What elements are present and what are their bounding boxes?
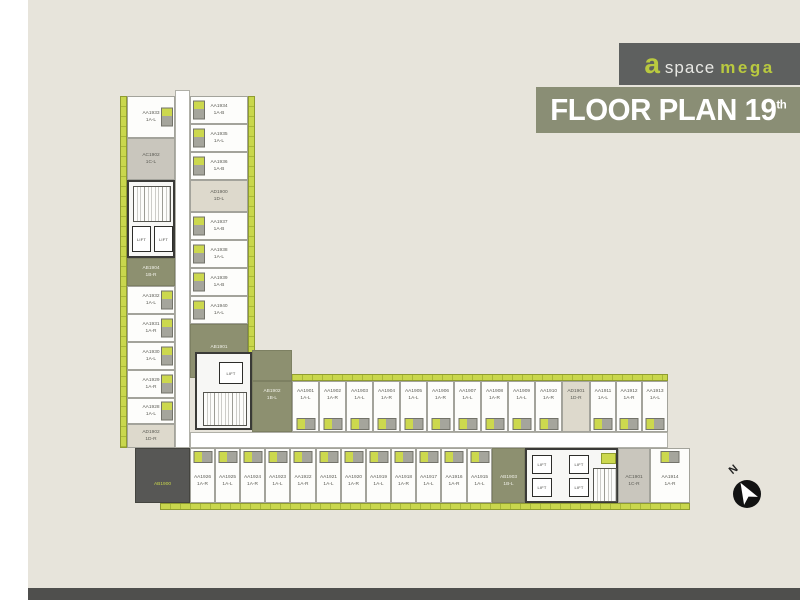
unit-AA1920: AA19201A-R <box>341 448 366 503</box>
unit-type: 1A-R <box>146 329 157 335</box>
lift-box: LIFT <box>219 362 243 384</box>
unit-type: 1A-L <box>354 396 364 402</box>
unit-AA1924: AA19241A-R <box>240 448 265 503</box>
unit-type: 1A-B <box>214 167 225 173</box>
unit-AA1922: AA19221A-R <box>290 448 316 503</box>
left-wing-core: LIFT LIFT <box>127 180 175 258</box>
unit-number: AA1929 <box>142 378 159 384</box>
unit-AA1906: AA19061A-R <box>427 381 454 432</box>
unit-AA1911: AA19111A-L <box>590 381 616 432</box>
unit-AB1900: AB1900 <box>135 448 190 503</box>
bathroom-pod <box>193 273 205 292</box>
bathroom-pod <box>161 291 173 310</box>
unit-AA1937: AA19371A-B <box>190 212 248 240</box>
unit-type: 1A-L <box>408 396 418 402</box>
unit-type: 1C-L <box>146 160 156 166</box>
unit-AA1909: AA19091A-L <box>508 381 535 432</box>
bathroom-pod <box>319 451 338 463</box>
unit-number: AA1940 <box>210 304 227 310</box>
unit-number: AA1911 <box>595 389 612 395</box>
unit-AA1912: AA19121A-R <box>616 381 642 432</box>
unit-AA1925: AA19251A-L <box>215 448 240 503</box>
unit-number: AA1937 <box>210 220 227 226</box>
unit-type: 1D-R <box>570 396 581 402</box>
unit-AA1913: AA19131A-L <box>642 381 668 432</box>
unit-number: AA1930 <box>142 350 159 356</box>
unit-type: 1A-R <box>435 396 446 402</box>
bathroom-pod <box>193 157 205 176</box>
unit-number: AD1901 <box>567 389 584 395</box>
unit-number: AA1912 <box>620 389 637 395</box>
unit-AA1940: AA19401A-L <box>190 296 248 324</box>
bathroom-pod <box>539 418 558 430</box>
unit-AA1932: AA19321A-L <box>127 286 175 314</box>
unit-number: AA1922 <box>294 475 311 481</box>
bathroom-pod <box>161 375 173 394</box>
unit-type: 1A-R <box>665 482 676 488</box>
unit-number: AA1934 <box>210 104 227 110</box>
unit-type: 1A-R <box>327 396 338 402</box>
unit-AA1923: AA19231A-L <box>265 448 290 503</box>
unit-number: AA1931 <box>142 322 159 328</box>
bathroom-pod <box>369 451 388 463</box>
unit-AA1929: AA19291A-R <box>127 370 175 398</box>
unit-AB1902: AB19021B-L <box>252 381 292 432</box>
bathroom-pod <box>193 451 212 463</box>
unit-AA1930: AA19301A-L <box>127 342 175 370</box>
bathroom-pod <box>193 245 205 264</box>
unit-AA1928: AA19281A-L <box>127 398 175 424</box>
unit-number: AA1914 <box>661 475 678 481</box>
lift-label: LIFT <box>574 462 583 467</box>
lift-label: LIFT <box>226 371 235 376</box>
lift-box: LIFT <box>569 455 589 474</box>
lift-label: LIFT <box>137 237 146 242</box>
unit-number: AA1928 <box>142 405 159 411</box>
compass-north-label: N <box>727 463 741 477</box>
lift-label: LIFT <box>537 462 546 467</box>
bathroom-pod <box>620 418 639 430</box>
unit-number: AA1932 <box>142 294 159 300</box>
bathroom-pod <box>296 418 315 430</box>
unit-type: 1A-L <box>474 482 484 488</box>
lift-box: LIFT <box>532 478 552 497</box>
corridor-vertical <box>175 90 190 448</box>
corner-unit-extension <box>252 350 292 381</box>
compass: N <box>716 450 780 514</box>
unit-number: AA1918 <box>395 475 412 481</box>
unit-type: 1A-L <box>146 301 156 307</box>
bathroom-pod <box>218 451 237 463</box>
unit-type: 1A-L <box>423 482 433 488</box>
corner-core: LIFT <box>195 352 252 430</box>
unit-AA1939: AA19391A-B <box>190 268 248 296</box>
bathroom-pod <box>193 217 205 236</box>
balcony-strip-inner <box>248 96 255 370</box>
bathroom-pod <box>394 451 413 463</box>
unit-number: AA1933 <box>142 111 159 117</box>
lift-box: LIFT <box>154 226 173 252</box>
unit-AA1934: AA19341A-B <box>190 96 248 124</box>
unit-AA1915: AA19151A-L <box>467 448 492 503</box>
unit-AD1901: AD19011D-R <box>562 381 590 432</box>
unit-AA1908: AA19081A-R <box>481 381 508 432</box>
unit-number: AB1900 <box>154 482 171 488</box>
unit-type: 1A-R <box>489 396 500 402</box>
unit-number: AB1901 <box>210 345 227 351</box>
unit-number: AA1915 <box>471 475 488 481</box>
unit-number: AA1913 <box>646 389 663 395</box>
bathroom-pod <box>193 129 205 148</box>
unit-type: 1A-L <box>373 482 383 488</box>
bathroom-pod <box>323 418 342 430</box>
unit-AA1918: AA19181A-R <box>391 448 416 503</box>
balcony-strip-left <box>120 96 127 448</box>
bathroom-pod <box>419 451 438 463</box>
unit-type: 1A-L <box>650 396 660 402</box>
unit-type: 1A-L <box>598 396 608 402</box>
lift-label: LIFT <box>574 485 583 490</box>
unit-AA1907: AA19071A-L <box>454 381 481 432</box>
unit-number: AA1908 <box>486 389 503 395</box>
bathroom-pod <box>594 418 613 430</box>
unit-type: 1A-L <box>146 412 156 418</box>
balcony-strip-bottom <box>160 503 690 510</box>
unit-type: 1D-R <box>145 437 156 443</box>
unit-AB1904: AB19041B-R <box>127 258 175 286</box>
bathroom-pod <box>377 418 396 430</box>
unit-type: 1A-R <box>146 385 157 391</box>
page: a space mega FLOOR PLAN 19th AA19331A-LA… <box>0 0 800 600</box>
unit-number: AB1903 <box>500 475 517 481</box>
unit-AA1901: AA19011A-L <box>292 381 319 432</box>
unit-number: AD1902 <box>142 430 159 436</box>
unit-AA1935: AA19351A-L <box>190 124 248 152</box>
unit-number: AA1935 <box>210 132 227 138</box>
unit-type: 1A-L <box>300 396 310 402</box>
unit-number: AA1939 <box>210 276 227 282</box>
unit-AA1916: AA19161A-R <box>441 448 467 503</box>
lift-box: LIFT <box>132 226 151 252</box>
unit-number: AA1919 <box>370 475 387 481</box>
stairwell-icon <box>203 392 247 426</box>
unit-AA1905: AA19051A-L <box>400 381 427 432</box>
unit-AA1931: AA19311A-R <box>127 314 175 342</box>
balcony-strip-top <box>252 374 668 381</box>
unit-AA1917: AA19171A-L <box>416 448 441 503</box>
unit-type: 1A-R <box>247 482 258 488</box>
unit-type: 1A-R <box>298 482 309 488</box>
lift-box: LIFT <box>532 455 552 474</box>
unit-number: AA1903 <box>351 389 368 395</box>
unit-AD1900: AD19001D-L <box>190 180 248 212</box>
unit-AA1938: AA19381A-L <box>190 240 248 268</box>
lift-label: LIFT <box>537 485 546 490</box>
unit-type: 1A-L <box>214 139 224 145</box>
unit-type: 1A-B <box>214 283 225 289</box>
unit-number: AA1920 <box>345 475 362 481</box>
bathroom-pod <box>193 101 205 120</box>
unit-AA1910: AA19101A-R <box>535 381 562 432</box>
bathroom-pod <box>161 402 173 421</box>
unit-AB1903: AB19031B-L <box>492 448 525 503</box>
unit-number: AA1926 <box>194 475 211 481</box>
unit-AA1902: AA19021A-R <box>319 381 346 432</box>
unit-number: AA1909 <box>513 389 530 395</box>
unit-AA1926: AA19261A-R <box>190 448 215 503</box>
unit-type: 1B-R <box>146 273 157 279</box>
floor-plan: AA19331A-LAC19021C-LAB19041B-RAA19321A-L… <box>0 0 800 600</box>
bathroom-pod <box>161 108 173 127</box>
bathroom-pod <box>268 451 287 463</box>
bathroom-pod <box>470 451 489 463</box>
unit-AA1936: AA19361A-B <box>190 152 248 180</box>
unit-AA1919: AA19191A-L <box>366 448 391 503</box>
unit-type: 1A-L <box>146 357 156 363</box>
unit-type: 1B-L <box>503 482 513 488</box>
unit-type: 1A-R <box>624 396 635 402</box>
unit-number: AB1904 <box>142 266 159 272</box>
unit-number: AA1925 <box>219 475 236 481</box>
unit-type: 1A-R <box>449 482 460 488</box>
unit-type: 1A-L <box>462 396 472 402</box>
unit-number: AA1905 <box>405 389 422 395</box>
bathroom-pod <box>646 418 665 430</box>
bathroom-pod <box>445 451 464 463</box>
bathroom-pod <box>431 418 450 430</box>
unit-AA1903: AA19031A-L <box>346 381 373 432</box>
lift-box: LIFT <box>569 478 589 497</box>
bathroom-pod <box>243 451 262 463</box>
bathroom-pod <box>161 319 173 338</box>
bathroom-pod <box>661 451 680 463</box>
bathroom-pod <box>294 451 313 463</box>
unit-number: AA1901 <box>297 389 314 395</box>
unit-number: AA1907 <box>459 389 476 395</box>
unit-type: 1A-L <box>222 482 232 488</box>
unit-number: AA1906 <box>432 389 449 395</box>
unit-type: 1B-L <box>267 396 277 402</box>
unit-AA1914: AA19141A-R <box>650 448 690 503</box>
unit-number: AA1916 <box>445 475 462 481</box>
unit-type: 1D-L <box>214 197 224 203</box>
unit-number: AC1901 <box>625 475 642 481</box>
unit-type: 1A-R <box>543 396 554 402</box>
unit-AA1904: AA19041A-R <box>373 381 400 432</box>
unit-type: 1A-L <box>323 482 333 488</box>
bathroom-pod <box>193 301 205 320</box>
unit-type: 1A-R <box>381 396 392 402</box>
unit-number: AA1921 <box>320 475 337 481</box>
unit-type: 1A-B <box>214 227 225 233</box>
unit-number: AA1902 <box>324 389 341 395</box>
unit-number: AA1917 <box>420 475 437 481</box>
bathroom-pod <box>485 418 504 430</box>
unit-type: 1A-L <box>146 118 156 124</box>
unit-type: 1A-L <box>214 311 224 317</box>
lift-label: LIFT <box>159 237 168 242</box>
unit-number: AA1924 <box>244 475 261 481</box>
unit-AD1902: AD19021D-R <box>127 424 175 448</box>
bathroom-pod <box>350 418 369 430</box>
bathroom-pod <box>161 347 173 366</box>
unit-number: AA1904 <box>378 389 395 395</box>
balcony-pod <box>601 453 616 464</box>
stairwell-icon <box>593 468 617 502</box>
unit-number: AA1936 <box>210 160 227 166</box>
unit-type: 1A-L <box>516 396 526 402</box>
corridor-horizontal <box>190 432 668 448</box>
bathroom-pod <box>404 418 423 430</box>
unit-type: 1A-B <box>214 111 225 117</box>
unit-type: 1A-R <box>348 482 359 488</box>
unit-number: AC1902 <box>142 153 159 159</box>
unit-AC1901: AC19011C-R <box>618 448 650 503</box>
unit-AC1902: AC19021C-L <box>127 138 175 180</box>
unit-type: 1A-R <box>197 482 208 488</box>
unit-number: AA1923 <box>269 475 286 481</box>
bathroom-pod <box>458 418 477 430</box>
unit-AA1933: AA19331A-L <box>127 96 175 138</box>
unit-number: AA1910 <box>540 389 557 395</box>
unit-type: 1A-L <box>272 482 282 488</box>
unit-type: 1A-R <box>398 482 409 488</box>
unit-AA1921: AA19211A-L <box>316 448 341 503</box>
stairwell-icon <box>133 186 171 222</box>
unit-number: AA1938 <box>210 248 227 254</box>
bathroom-pod <box>512 418 531 430</box>
unit-type: 1A-L <box>214 255 224 261</box>
bathroom-pod <box>344 451 363 463</box>
unit-type: 1C-R <box>628 482 639 488</box>
unit-number: AD1900 <box>210 190 227 196</box>
bottom-wing-core: LIFT LIFT LIFT LIFT <box>525 448 618 503</box>
unit-number: AB1902 <box>263 389 280 395</box>
